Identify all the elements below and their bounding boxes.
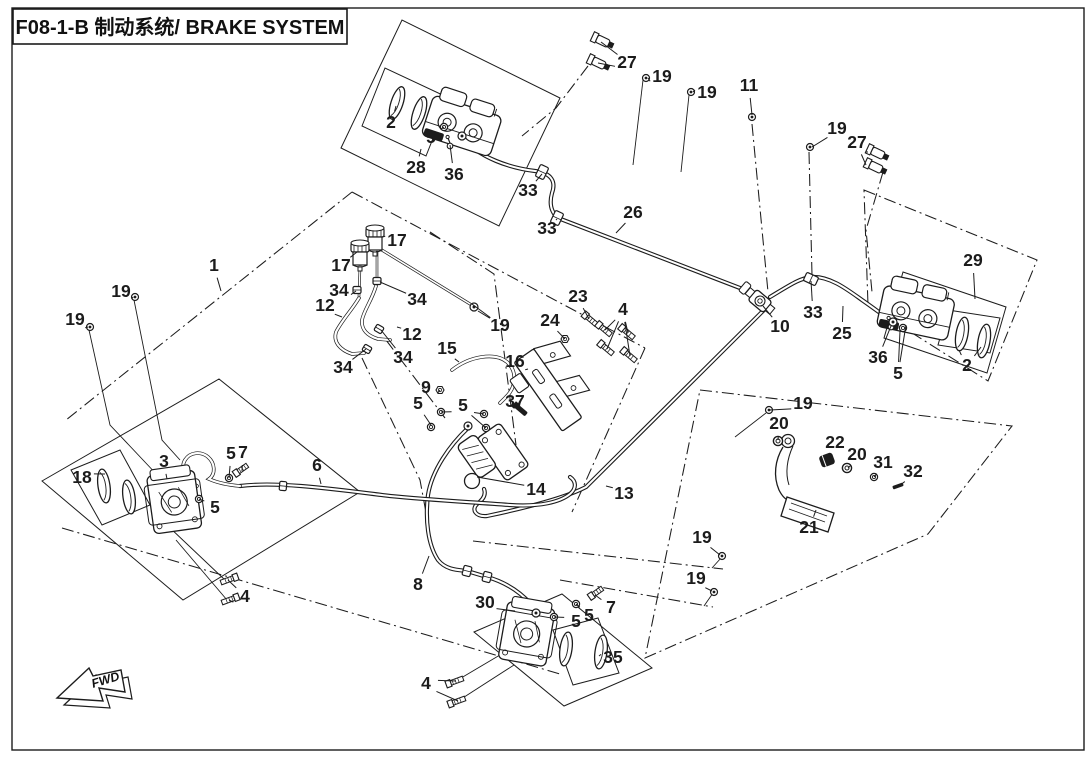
callout-number: 22 — [825, 432, 845, 452]
callout-number: 33 — [803, 302, 823, 322]
callout-number: 34 — [333, 357, 353, 377]
callout-number: 34 — [407, 289, 427, 309]
callout-32: 32 — [899, 461, 923, 486]
callout-number: 30 — [475, 592, 495, 612]
callout-number: 32 — [903, 461, 923, 481]
callout-number: 24 — [540, 310, 560, 330]
callout-number: 35 — [603, 647, 623, 667]
bolt-4-2 — [597, 340, 615, 357]
bolt-19-6 — [719, 553, 726, 560]
bushing-22 — [818, 452, 835, 468]
callout-number: 20 — [769, 413, 789, 433]
callout-24: 24 — [540, 310, 565, 339]
bolt-7-b — [587, 585, 604, 600]
callout-5: 5 — [893, 325, 906, 383]
callout-number: 4 — [240, 586, 250, 606]
callout-leader — [217, 278, 221, 291]
callout-number: 11 — [740, 75, 759, 95]
phantom-line-12 — [809, 152, 812, 275]
bolt-19-7 — [711, 589, 718, 596]
pad-front-right-a — [953, 316, 971, 352]
callout-number: 26 — [623, 202, 643, 222]
callout-number: 5 — [226, 443, 236, 463]
callout-leader — [770, 409, 791, 410]
callout-number: 20 — [847, 444, 867, 464]
callout-leader — [812, 137, 827, 147]
caliper-rear-center — [494, 595, 560, 668]
callout-number: 4 — [421, 673, 431, 693]
callout-31: 31 — [873, 452, 893, 477]
hose-26-front-left-core — [462, 138, 754, 296]
callout-number: 2 — [962, 355, 972, 375]
callout-19: 19 — [648, 66, 672, 86]
clamp-34-1 — [373, 278, 381, 285]
callout-number: 13 — [614, 483, 634, 503]
callout-number: 5 — [584, 605, 594, 625]
callout-number: 19 — [111, 281, 131, 301]
callout-number: 7 — [238, 442, 248, 462]
banjo-fitting-2 — [532, 609, 540, 617]
callout-15: 15 — [437, 338, 459, 362]
bolt-7-a — [232, 462, 249, 477]
callout-number: 34 — [329, 280, 349, 300]
callout-2: 2 — [959, 347, 981, 375]
extension-line-6 — [456, 652, 505, 681]
callout-36: 36 — [444, 145, 464, 184]
parts-diagram-page: F08-1-B 制动系统/ BRAKE SYSTEM 1223444555555… — [0, 0, 1090, 760]
ring-20-1 — [842, 463, 851, 472]
callout-number: 17 — [387, 230, 406, 250]
hose-26-front-left — [462, 138, 754, 296]
mounting-bracket — [503, 334, 604, 440]
hose-12-left-core — [335, 298, 364, 354]
callout-25: 25 — [832, 306, 852, 343]
callout-number: 33 — [518, 180, 538, 200]
callout-5: 5 — [554, 611, 581, 631]
callout-number: 19 — [827, 118, 847, 138]
callout-number: 10 — [770, 316, 790, 336]
bolt-4-5 — [221, 593, 240, 606]
clamp-33-0 — [535, 164, 549, 180]
banjo-fitting-1 — [889, 318, 897, 326]
connector-hose6 — [279, 481, 287, 491]
callout-13: 13 — [606, 483, 634, 503]
callout-12: 12 — [397, 324, 422, 344]
callout-leader — [438, 680, 456, 681]
callout-number: 5 — [426, 127, 436, 147]
callout-number: 12 — [402, 324, 422, 344]
callout-17: 17 — [382, 230, 407, 250]
callout-19: 19 — [65, 309, 88, 329]
callout-19: 19 — [111, 281, 133, 301]
callout-19: 19 — [686, 568, 712, 591]
callout-leader — [750, 98, 752, 115]
pad-rear-center-a — [558, 631, 575, 666]
callout-number: 27 — [847, 132, 866, 152]
callout-leader — [477, 477, 524, 485]
callout-29: 29 — [963, 250, 983, 299]
callout-leader — [861, 154, 866, 165]
callout-leader — [842, 306, 843, 322]
callout-number: 23 — [568, 286, 588, 306]
callout-leader — [380, 282, 406, 293]
callout-number: 15 — [437, 338, 457, 358]
extension-line-1 — [681, 95, 689, 172]
callout-11: 11 — [740, 75, 759, 115]
callout-10: 10 — [763, 306, 790, 336]
callout-leader — [478, 311, 490, 318]
callout-number: 2 — [386, 112, 396, 132]
callout-number: 19 — [65, 309, 85, 329]
callout-8: 8 — [413, 556, 429, 594]
callout-19: 19 — [770, 393, 813, 413]
extension-line-3 — [89, 330, 160, 478]
callout-number: 19 — [793, 393, 813, 413]
callout-number: 19 — [692, 527, 712, 547]
callout-35: 35 — [599, 647, 623, 667]
callout-leader — [335, 314, 342, 317]
banjo-bolt-27-3 — [863, 158, 888, 177]
clamp-hose8-0 — [462, 565, 472, 577]
callout-number: 17 — [331, 255, 350, 275]
callout-number: 19 — [652, 66, 672, 86]
callout-number: 14 — [526, 479, 546, 499]
callout-number: 28 — [406, 157, 426, 177]
callout-number: 5 — [458, 395, 468, 415]
phantom-line-0 — [66, 192, 352, 420]
callout-5: 5 — [441, 395, 486, 428]
extension-line-8 — [735, 413, 766, 437]
callout-5: 5 — [199, 497, 220, 517]
callout-34: 34 — [329, 280, 356, 300]
callout-33: 33 — [537, 218, 557, 238]
banjo-fitting-0 — [458, 132, 466, 140]
callout-number: 36 — [444, 164, 464, 184]
callout-23: 23 — [568, 286, 589, 319]
callout-34: 34 — [380, 282, 427, 309]
callout-number: 4 — [618, 299, 628, 319]
page-title: F08-1-B 制动系统/ BRAKE SYSTEM — [16, 15, 345, 39]
callout-leader — [899, 331, 900, 362]
callout-19: 19 — [472, 304, 510, 335]
callout-number: 1 — [209, 255, 219, 275]
phantom-group-lines — [62, 66, 1037, 674]
pad-rear-left-b — [121, 479, 138, 514]
callout-14: 14 — [477, 477, 546, 499]
callout-number: 18 — [72, 467, 92, 487]
callout-leader — [606, 486, 613, 488]
callout-leader — [605, 320, 615, 330]
extension-line-0 — [633, 80, 643, 165]
brake-system-diagram: F08-1-B 制动系统/ BRAKE SYSTEM 1223444555555… — [0, 0, 1090, 760]
callout-number: 31 — [873, 452, 893, 472]
callout-leader — [424, 415, 431, 425]
extension-line-4 — [168, 526, 225, 580]
callout-leader — [397, 327, 401, 328]
callout-number: 3 — [159, 451, 169, 471]
phantom-line-8 — [522, 66, 588, 136]
callout-number: 25 — [832, 323, 852, 343]
callout-number: 19 — [686, 568, 706, 588]
extension-line-7 — [458, 665, 514, 701]
callout-16: 16 — [505, 351, 528, 371]
callout-number: 5 — [571, 611, 581, 631]
phantom-line-7 — [866, 172, 883, 292]
callout-number: 34 — [393, 347, 413, 367]
callout-number: 9 — [421, 377, 431, 397]
callout-33: 33 — [803, 281, 823, 322]
banjo-fitting-3 — [464, 422, 472, 430]
callout-number: 8 — [413, 574, 423, 594]
callout-leader — [436, 691, 458, 701]
callout-number: 19 — [697, 82, 717, 102]
callout-leader — [710, 547, 720, 555]
callout-number: 16 — [505, 351, 525, 371]
callout-36: 36 — [868, 326, 891, 367]
callout-leader — [616, 223, 625, 233]
callout-6: 6 — [312, 455, 322, 484]
callout-leader — [422, 556, 429, 574]
callout-number: 29 — [963, 250, 983, 270]
callout-4: 4 — [421, 673, 458, 701]
title-block: F08-1-B 制动系统/ BRAKE SYSTEM — [13, 9, 347, 44]
callout-5: 5 — [413, 393, 431, 425]
callout-number: 5 — [210, 497, 220, 517]
callout-leader — [595, 595, 601, 600]
phantom-line-5 — [473, 541, 723, 569]
callout-number: 21 — [799, 517, 819, 537]
hose-6-rear-left — [240, 477, 575, 505]
callout-number: 6 — [312, 455, 322, 475]
caliper-front-right — [876, 274, 957, 341]
callout-26: 26 — [616, 202, 643, 233]
callout-19: 19 — [693, 82, 717, 102]
callout-number: 7 — [606, 597, 616, 617]
callout-leader — [319, 478, 321, 484]
extension-line-5 — [176, 540, 227, 600]
extension-line-9 — [712, 558, 721, 568]
callout-leader — [85, 327, 88, 328]
callout-number: 19 — [490, 315, 510, 335]
callout-7: 7 — [595, 595, 616, 617]
callout-27: 27 — [847, 132, 868, 165]
bolt-4-4 — [220, 573, 239, 586]
callout-number: 33 — [537, 218, 557, 238]
callout-28: 28 — [406, 149, 426, 177]
fwd-arrow: FWD — [57, 668, 132, 708]
phantom-line-9 — [752, 124, 768, 292]
master-cylinder-knob — [465, 474, 480, 489]
callout-19: 19 — [692, 527, 720, 555]
clamp-hose8-1 — [482, 571, 492, 583]
callout-19: 19 — [812, 118, 847, 147]
callout-number: 27 — [617, 52, 636, 72]
extension-line-2 — [134, 300, 180, 460]
callout-number: 37 — [505, 391, 524, 411]
hose-6-rear-left-core — [240, 477, 575, 505]
callout-number: 5 — [893, 363, 903, 383]
callout-leader — [525, 369, 528, 370]
callout-1: 1 — [209, 255, 221, 291]
bolt-4-6 — [445, 675, 464, 688]
callout-number: 36 — [868, 347, 888, 367]
callout-37: 37 — [505, 391, 524, 412]
callout-leader — [455, 359, 459, 362]
callout-leader — [974, 273, 975, 299]
banjo-bolt-27-0 — [590, 32, 615, 51]
